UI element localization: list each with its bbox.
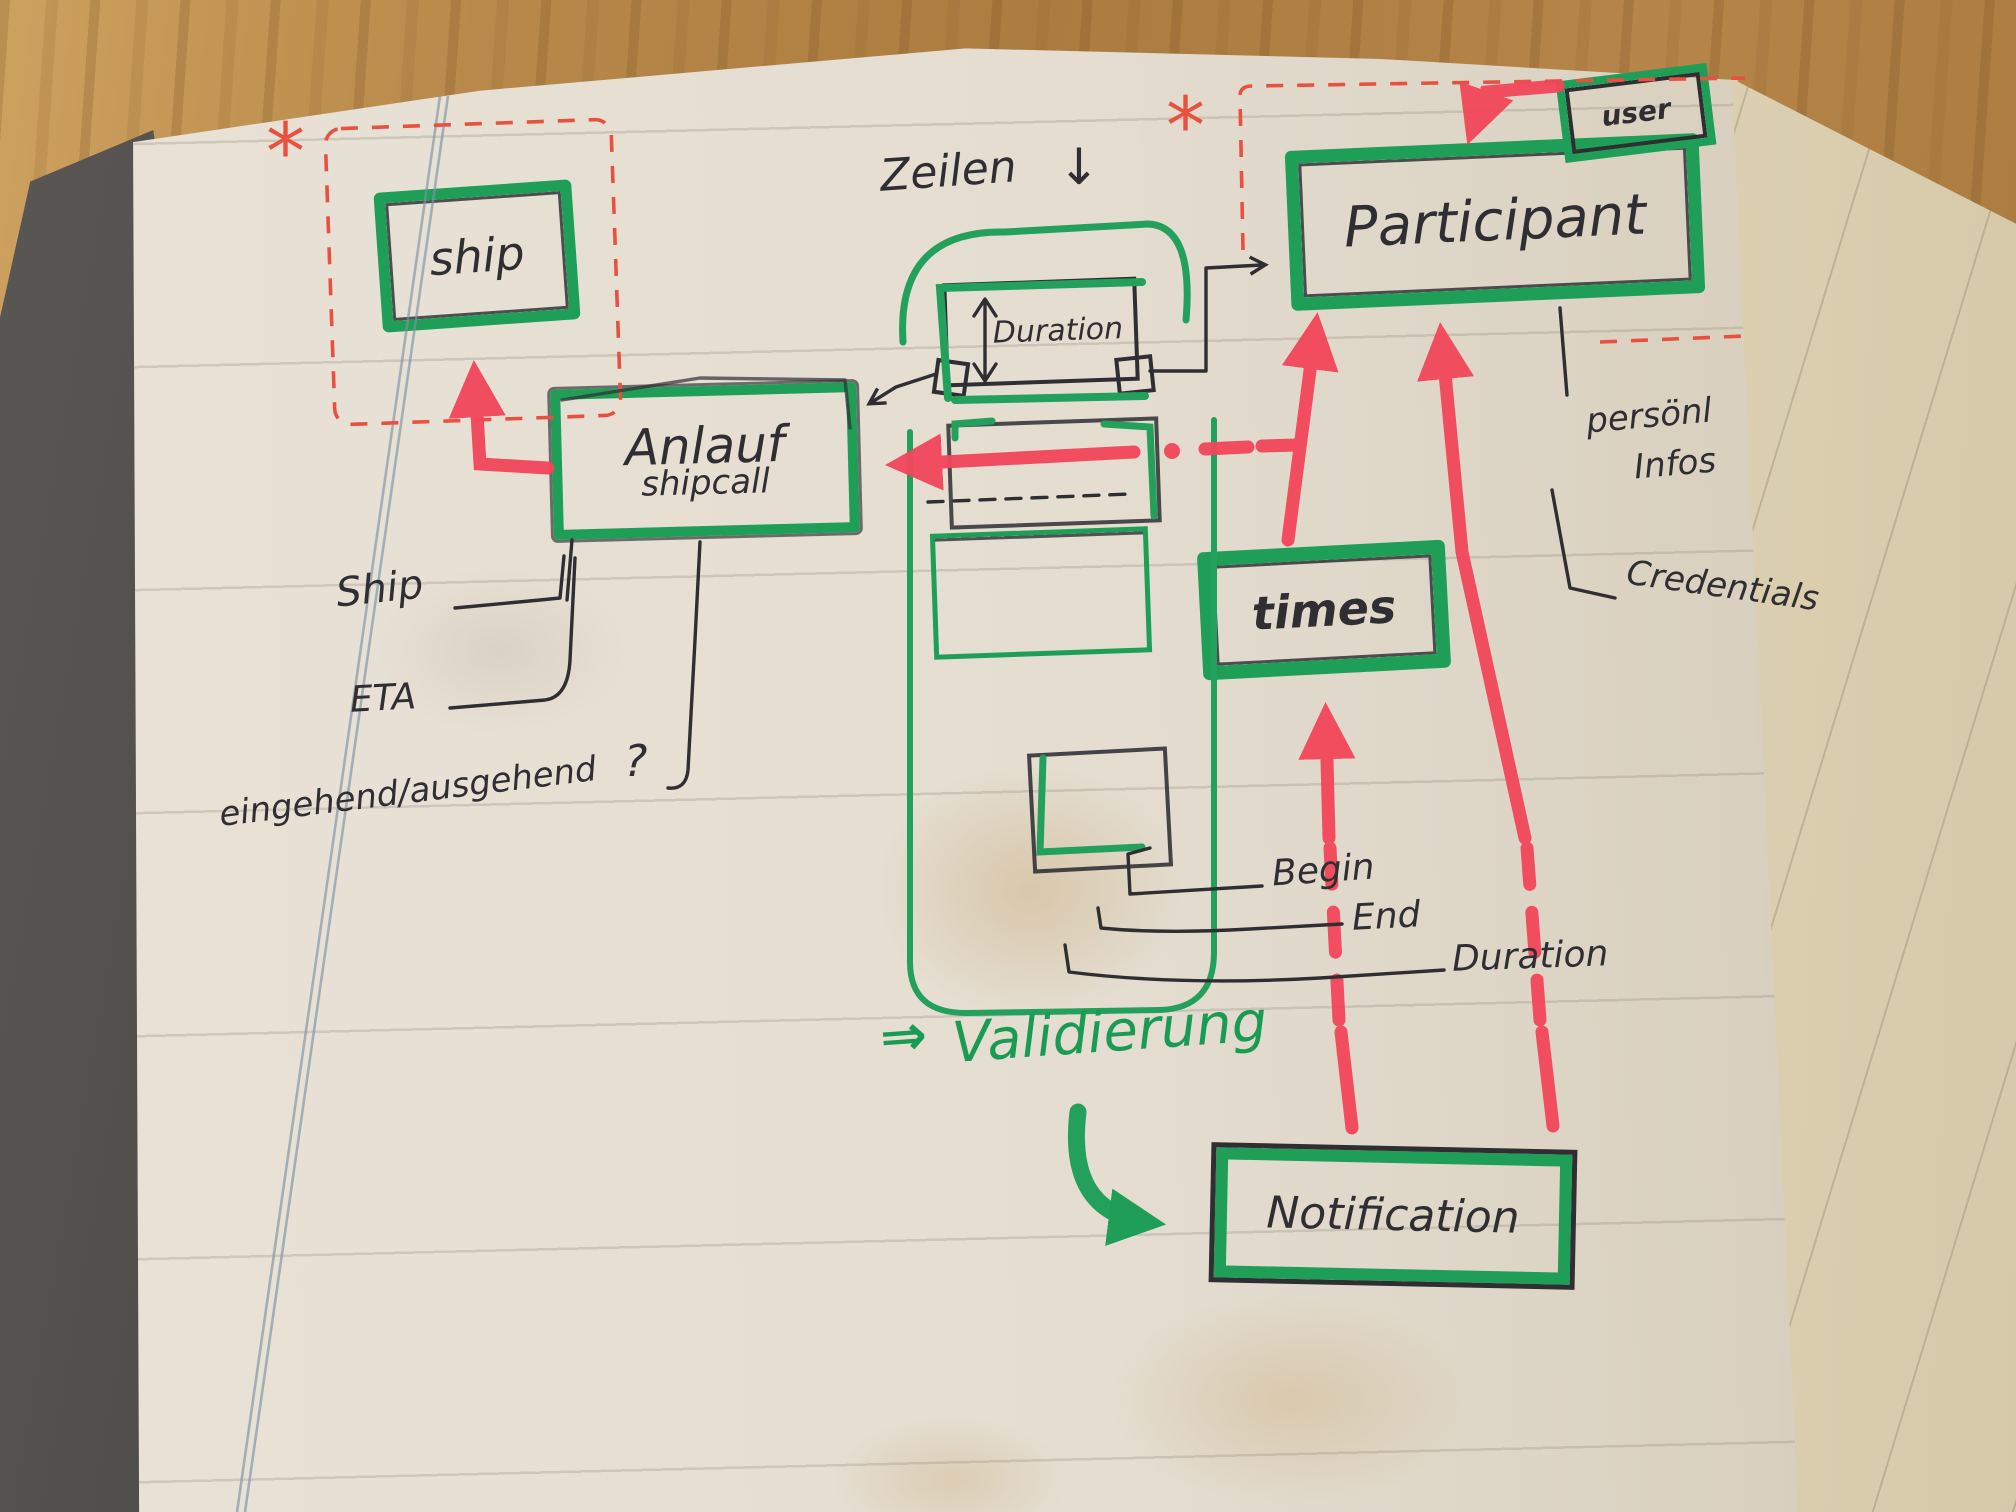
eta-label: ETA <box>349 676 417 720</box>
notification-box: Notification <box>1209 1142 1578 1290</box>
middle-box-3 <box>1027 746 1173 873</box>
anlauf-box: Anlauf shipcall <box>550 382 860 540</box>
participant-box: Participant <box>1285 133 1706 311</box>
duration-box-label: Duration <box>992 314 1123 349</box>
notebook-photo: ship Anlauf shipcall Participant user Du… <box>0 0 2016 1512</box>
begin-label: Begin <box>1271 846 1376 894</box>
anlauf-box-sublabel: shipcall <box>641 464 771 502</box>
asterisk-icon-participant: * <box>1166 82 1205 172</box>
down-arrow-icon: ↓ <box>1058 138 1100 196</box>
ship-box: ship <box>373 179 580 332</box>
ship-box-label: ship <box>428 229 526 282</box>
user-box-label: user <box>1600 95 1672 132</box>
personal-infos-label-line2: Infos <box>1632 441 1717 488</box>
ruled-lines <box>0 0 2016 1512</box>
zeilen-annotation: Zeilen <box>878 141 1018 201</box>
implies-arrow-icon: ⇒ <box>878 1002 929 1070</box>
times-box: times <box>1197 540 1451 681</box>
end-label: End <box>1351 894 1421 939</box>
duration-right-connector-square <box>1114 354 1156 396</box>
asterisk-icon-ship: * <box>266 108 305 198</box>
middle-box-2 <box>930 526 1152 660</box>
notification-box-label: Notification <box>1266 1191 1520 1241</box>
ship-attr-label: Ship <box>334 562 426 617</box>
duration-attr-label: Duration <box>1451 933 1609 979</box>
duration-box: Duration <box>942 277 1140 388</box>
duration-left-connector-square <box>932 358 971 398</box>
middle-box-1 <box>946 416 1162 529</box>
times-box-label: times <box>1251 583 1398 637</box>
participant-box-label: Participant <box>1343 187 1648 257</box>
inout-question-mark: ? <box>624 736 647 787</box>
